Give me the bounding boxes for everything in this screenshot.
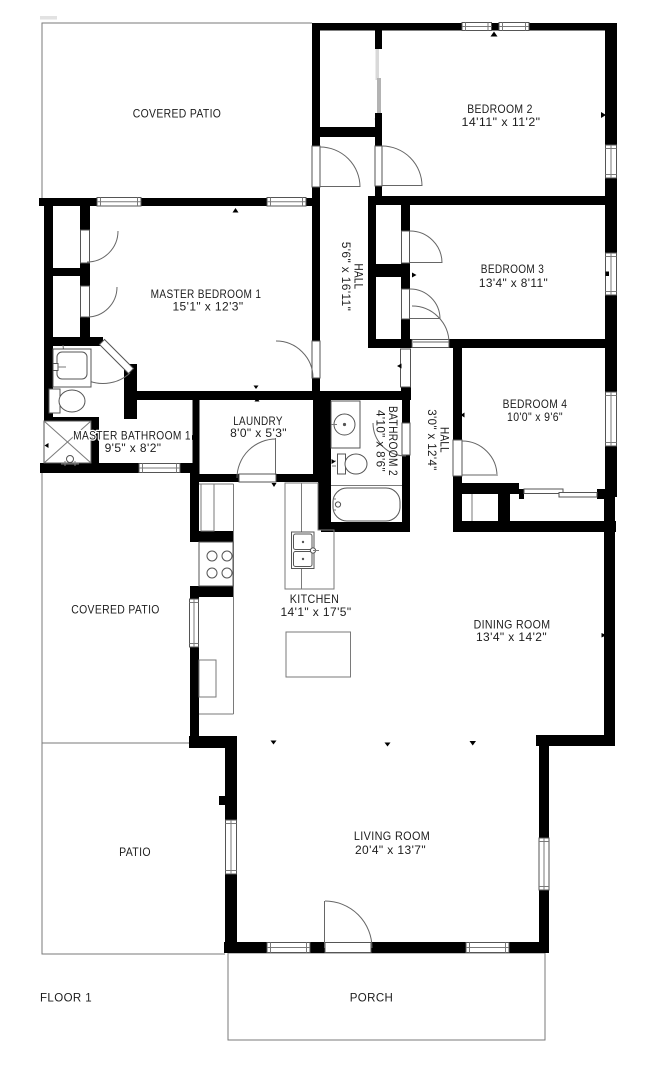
svg-text:KITCHEN: KITCHEN — [290, 592, 340, 606]
svg-text:13'4" x 8'11": 13'4" x 8'11" — [479, 276, 548, 290]
svg-text:14'11" x 11'2": 14'11" x 11'2" — [462, 115, 541, 129]
svg-text:5'6" x 16'11": 5'6" x 16'11" — [339, 242, 353, 312]
svg-text:3'0" x 12'4": 3'0" x 12'4" — [425, 409, 439, 471]
svg-text:9'5" x 8'2": 9'5" x 8'2" — [105, 441, 162, 455]
svg-text:13'4" x 14'2": 13'4" x 14'2" — [476, 630, 547, 644]
svg-text:COVERED PATIO: COVERED PATIO — [133, 106, 222, 120]
svg-text:15'1" x 12'3": 15'1" x 12'3" — [172, 300, 243, 314]
svg-text:COVERED PATIO: COVERED PATIO — [71, 602, 160, 616]
svg-text:14'1" x 17'5": 14'1" x 17'5" — [280, 605, 351, 619]
svg-text:PATIO: PATIO — [119, 845, 151, 859]
svg-text:20'4" x 13'7": 20'4" x 13'7" — [355, 843, 426, 857]
svg-text:10'0" x 9'6": 10'0" x 9'6" — [507, 410, 563, 424]
svg-text:FLOOR 1: FLOOR 1 — [40, 992, 92, 1004]
svg-text:8'0" x 5'3": 8'0" x 5'3" — [230, 426, 287, 440]
svg-text:BEDROOM 3: BEDROOM 3 — [481, 262, 544, 276]
svg-text:4'10" x 8'6": 4'10" x 8'6" — [374, 410, 388, 472]
svg-text:BEDROOM 2: BEDROOM 2 — [467, 102, 533, 116]
svg-text:PORCH: PORCH — [350, 991, 394, 1005]
svg-text:LIVING ROOM: LIVING ROOM — [354, 829, 430, 843]
